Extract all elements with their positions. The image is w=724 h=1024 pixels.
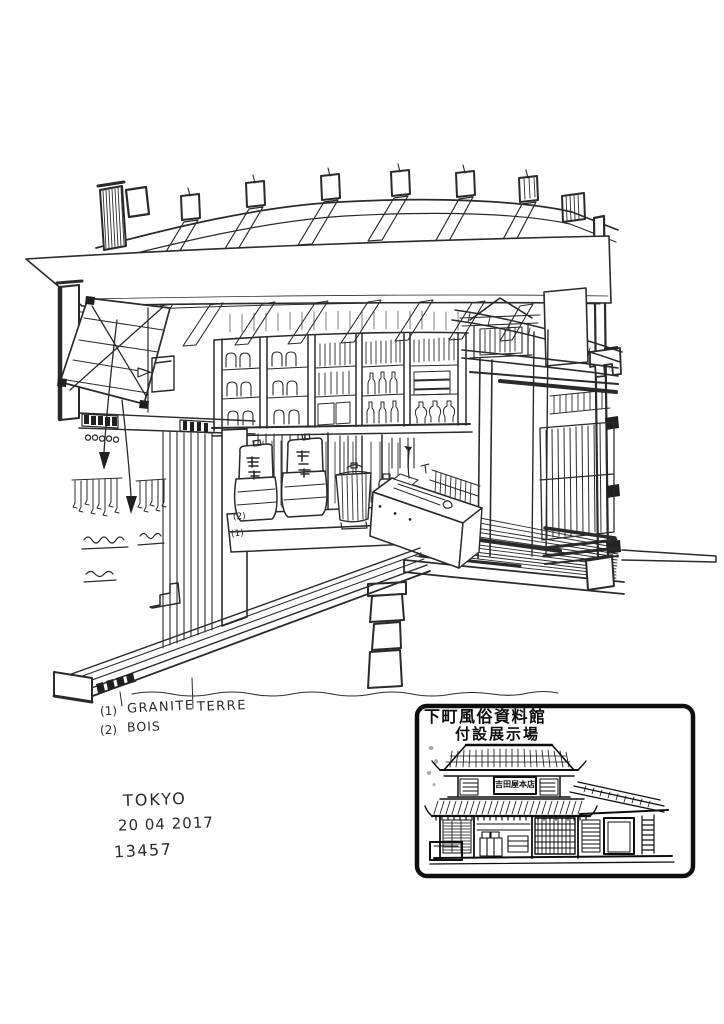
material-2-index: (2) xyxy=(100,724,117,737)
hanging-tools xyxy=(72,478,166,582)
platform-mark-1: (1) xyxy=(231,530,244,540)
shelf-bottles xyxy=(367,372,398,423)
platform-mark-2: (2) xyxy=(233,513,246,523)
dormer-window xyxy=(460,298,540,358)
right-base-stone xyxy=(586,556,614,590)
material-2-label: BOIS xyxy=(127,720,161,734)
signature-date: 20 04 2017 xyxy=(118,815,214,833)
signature-time: 13457 xyxy=(114,841,173,860)
stamp-building-sign: 吉田屋本店 xyxy=(495,781,535,789)
sketch-page: (1) GRANITE (2) BOIS TERRE (2) (1) TOKYO… xyxy=(0,0,724,1024)
shop-counter xyxy=(370,446,482,568)
stone-pier xyxy=(368,582,406,688)
stamp-title-line1: 下町風俗資料館 xyxy=(424,709,547,725)
granite-blocks xyxy=(94,673,136,695)
side-plank xyxy=(622,550,716,562)
shelf-jars xyxy=(226,352,299,425)
material-1-label: GRANITE xyxy=(127,699,195,716)
interior-sketch-svg xyxy=(0,0,724,1024)
granite-leader-line xyxy=(120,692,122,706)
beam-circles xyxy=(85,435,118,442)
shelf-books xyxy=(319,342,350,395)
stamp-title-line2: 付設展示場 xyxy=(455,727,540,742)
material-1-index: (1) xyxy=(100,705,117,718)
stamp-building xyxy=(425,745,674,864)
signature-city: TOKYO xyxy=(123,791,187,809)
ground-label: TERRE xyxy=(197,699,247,714)
roof-cut-hatch-left xyxy=(98,182,149,250)
